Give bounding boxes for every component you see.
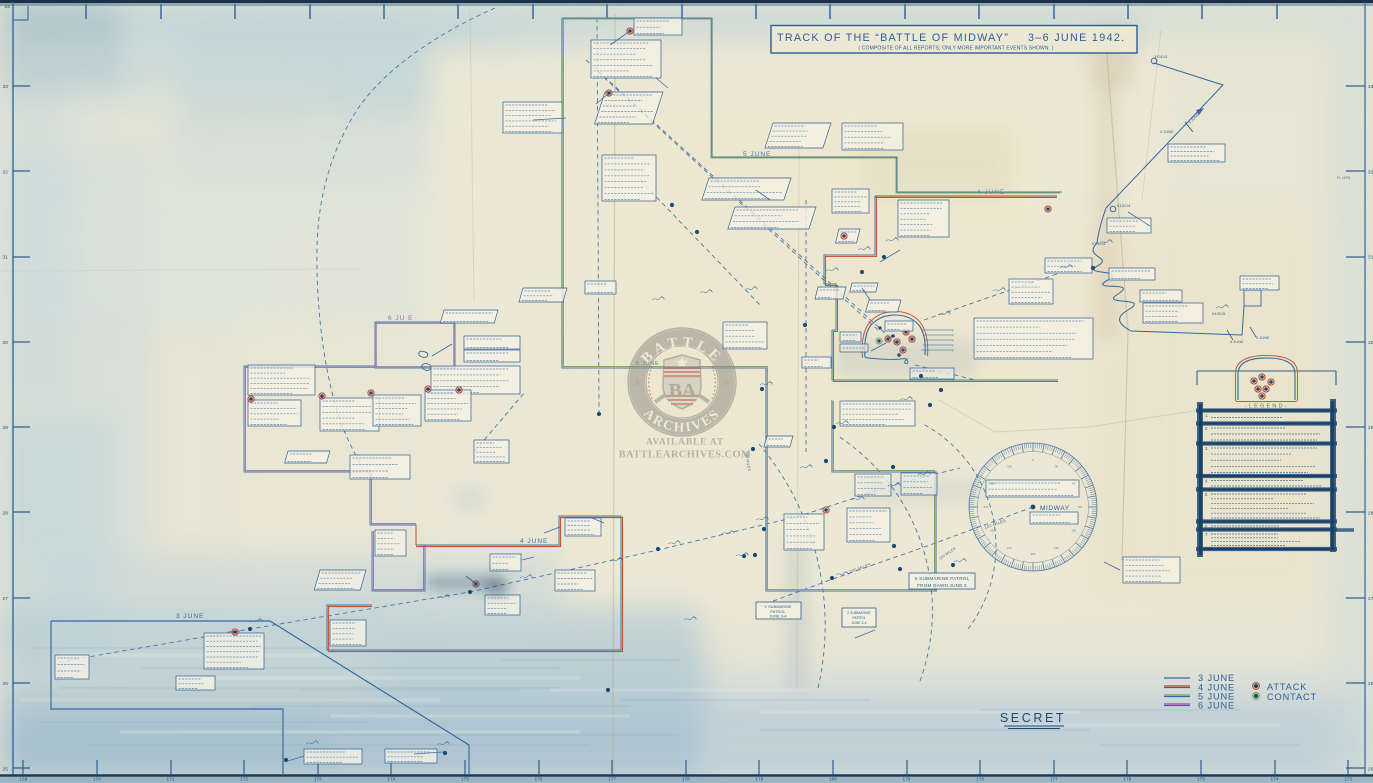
svg-text:29: 29 <box>1368 425 1373 430</box>
svg-text:169: 169 <box>19 777 27 782</box>
svg-text:33: 33 <box>2 84 8 89</box>
svg-text:172: 172 <box>240 777 248 782</box>
svg-text:175: 175 <box>1197 777 1205 782</box>
svg-text:30: 30 <box>2 340 8 345</box>
svg-text:6 JU E: 6 JU E <box>388 315 414 322</box>
svg-text:FL.USN: FL.USN <box>1337 176 1351 180</box>
svg-text:173: 173 <box>1344 777 1352 782</box>
svg-text:JUNE 3-4: JUNE 3-4 <box>851 621 866 625</box>
svg-text:179: 179 <box>755 777 763 782</box>
svg-text:4 JUNE: 4 JUNE <box>1230 340 1244 344</box>
svg-text:7.: 7. <box>1205 532 1209 537</box>
svg-text:90: 90 <box>1078 505 1082 509</box>
svg-text:2.: 2. <box>1205 426 1209 431</box>
svg-text:32: 32 <box>2 169 8 174</box>
svg-text:AVAILABLE AT: AVAILABLE AT <box>646 438 724 448</box>
svg-text:28: 28 <box>1368 511 1373 516</box>
svg-text:29: 29 <box>2 425 8 430</box>
svg-text:4 JUNE: 4 JUNE <box>977 189 1005 196</box>
svg-text:330: 330 <box>1007 464 1012 468</box>
svg-text:210: 210 <box>1007 546 1012 550</box>
svg-text:TRACK OF THE “BATTLE OF MIDWAY: TRACK OF THE “BATTLE OF MIDWAY” <box>777 32 1009 44</box>
svg-text:176: 176 <box>535 777 543 782</box>
svg-text:300: 300 <box>990 482 995 486</box>
svg-text:175: 175 <box>461 777 469 782</box>
svg-text:★: ★ <box>632 375 644 390</box>
svg-text:0730/4: 0730/4 <box>1092 241 1106 246</box>
svg-text:150: 150 <box>1054 546 1059 550</box>
svg-text:177: 177 <box>608 777 616 782</box>
svg-text:MIDWAY: MIDWAY <box>1040 505 1070 512</box>
svg-text:FROM DAWN JUNE 5: FROM DAWN JUNE 5 <box>917 583 967 588</box>
svg-text:25: 25 <box>1368 766 1373 771</box>
svg-text:4 JUNE: 4 JUNE <box>1160 130 1174 134</box>
svg-text:173: 173 <box>314 777 322 782</box>
svg-text:PATROL: PATROL <box>852 616 865 620</box>
svg-text:240: 240 <box>990 529 995 533</box>
svg-text:3.: 3. <box>1205 446 1209 451</box>
svg-text:180: 180 <box>1031 552 1036 556</box>
svg-text:BATTLEARCHIVES.COM: BATTLEARCHIVES.COM <box>619 450 752 461</box>
svg-text:4.: 4. <box>1205 479 1209 484</box>
svg-text:176: 176 <box>1123 777 1131 782</box>
svg-text:170: 170 <box>93 777 101 782</box>
svg-text:6 JUNE: 6 JUNE <box>1198 701 1235 711</box>
svg-text:33: 33 <box>1368 84 1373 89</box>
svg-text:120: 120 <box>1071 529 1076 533</box>
svg-text:5 JUNE: 5 JUNE <box>1256 336 1270 340</box>
svg-text:5.: 5. <box>1205 492 1209 497</box>
svg-text:1410/3: 1410/3 <box>1154 54 1168 59</box>
svg-text:26: 26 <box>1368 681 1373 686</box>
svg-text:177: 177 <box>1050 777 1058 782</box>
svg-text:178: 178 <box>682 777 690 782</box>
svg-text:174: 174 <box>1271 777 1279 782</box>
svg-text:6.: 6. <box>1205 524 1209 529</box>
svg-text:171: 171 <box>167 777 175 782</box>
svg-text:3 JUNE: 3 JUNE <box>176 613 204 620</box>
svg-text:30: 30 <box>1055 464 1059 468</box>
svg-text:31: 31 <box>1368 255 1373 260</box>
svg-text:27: 27 <box>1368 596 1373 601</box>
svg-text:30: 30 <box>1368 340 1373 345</box>
svg-text:2 SUBMARINE: 2 SUBMARINE <box>847 611 871 615</box>
svg-text:V SUBMARINE: V SUBMARINE <box>764 605 792 609</box>
svg-text:26: 26 <box>2 681 8 686</box>
svg-text:32: 32 <box>1368 169 1373 174</box>
svg-text:( COMPOSITE OF ALL REPORTS; ON: ( COMPOSITE OF ALL REPORTS; ONLY MORE IM… <box>858 46 1053 52</box>
svg-text:27: 27 <box>2 596 8 601</box>
svg-text:3–6 JUNE 1942.: 3–6 JUNE 1942. <box>1028 32 1125 44</box>
svg-text:II SUBMARINE PATROL: II SUBMARINE PATROL <box>915 576 970 581</box>
svg-text:1.: 1. <box>1205 413 1209 418</box>
svg-text:270: 270 <box>984 505 989 509</box>
svg-text:★: ★ <box>721 375 733 390</box>
svg-text:BA: BA <box>669 380 697 402</box>
svg-text:PATROL: PATROL <box>770 610 785 614</box>
svg-text:3 JUNE: 3 JUNE <box>1198 673 1235 683</box>
svg-text:179: 179 <box>903 777 911 782</box>
svg-text:ATTACK: ATTACK <box>1267 682 1307 692</box>
svg-text:CONTACT: CONTACT <box>1267 692 1317 702</box>
svg-text:28: 28 <box>2 511 8 516</box>
svg-text:0430/5: 0430/5 <box>1212 311 1226 316</box>
svg-text:JUNE 3-4: JUNE 3-4 <box>769 615 786 619</box>
svg-text:0100/4: 0100/4 <box>1117 203 1131 208</box>
svg-text:180: 180 <box>829 777 837 782</box>
svg-text:25: 25 <box>2 766 8 771</box>
svg-text:5 JUNE: 5 JUNE <box>743 151 771 158</box>
svg-text:60: 60 <box>1072 482 1076 486</box>
svg-text:31: 31 <box>2 255 8 260</box>
svg-text:178: 178 <box>976 777 984 782</box>
svg-text:4 JUNE: 4 JUNE <box>520 538 548 545</box>
svg-text:174: 174 <box>387 777 395 782</box>
svg-text:SECRET: SECRET <box>1000 711 1066 725</box>
svg-text:34: 34 <box>4 4 10 9</box>
